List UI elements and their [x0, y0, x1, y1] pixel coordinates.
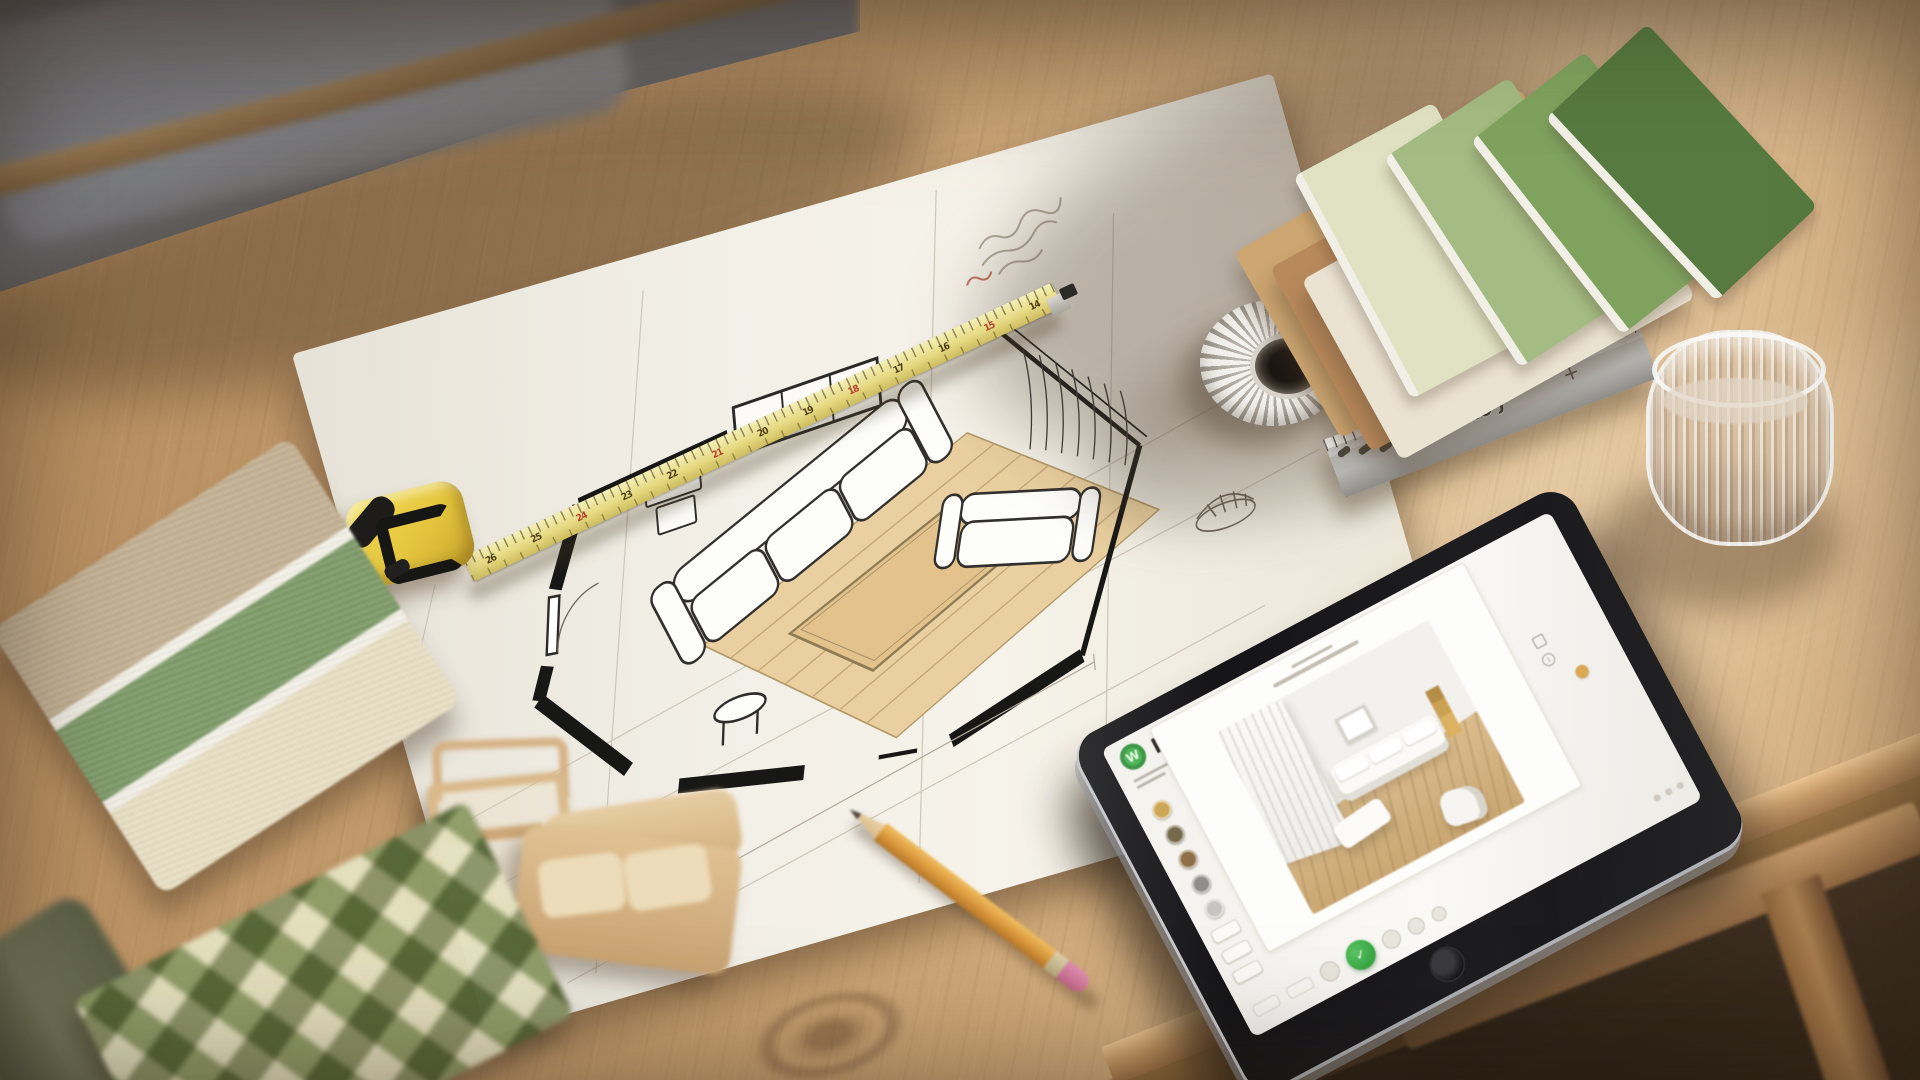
mini-sofa-cushion: [537, 851, 627, 919]
paint-swatch-fan: [1252, 50, 1743, 397]
water-surface: [1662, 378, 1808, 424]
desk-scene: 2625 2423 2221 2019 1817 1615 14 T.O J +: [0, 0, 1920, 1080]
